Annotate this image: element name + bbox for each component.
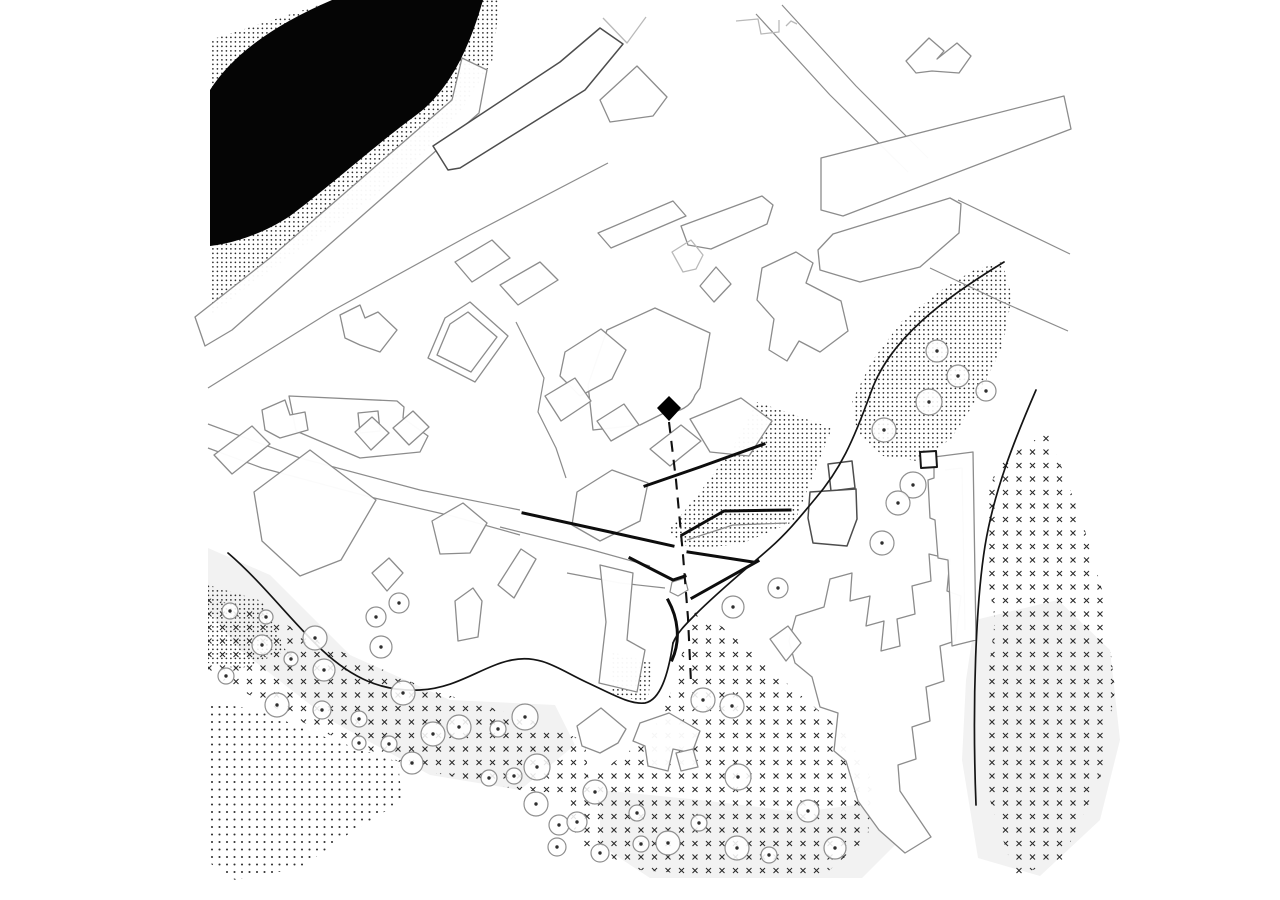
plan-content (195, 0, 1120, 880)
tree-center-dot (523, 715, 526, 718)
tree-center-dot (767, 853, 770, 856)
tree-center-dot (575, 820, 578, 823)
tree-center-dot (410, 761, 413, 764)
tree-center-dot (224, 674, 227, 677)
tree-center-dot (322, 668, 325, 671)
tree-center-dot (697, 821, 700, 824)
tree-center-dot (880, 541, 883, 544)
tree-center-dot (635, 811, 638, 814)
building (372, 558, 403, 591)
building (500, 262, 558, 305)
building (598, 201, 686, 248)
building (821, 96, 1071, 216)
site-plan-canvas (0, 0, 1280, 900)
tree-center-dot (736, 775, 739, 778)
tree-center-dot (593, 790, 596, 793)
tree-center-dot (598, 851, 601, 854)
tree-center-dot (313, 636, 316, 639)
building (681, 196, 773, 249)
site-plan-figure (0, 0, 1280, 900)
tree-center-dot (535, 765, 538, 768)
building (455, 588, 482, 641)
tree-center-dot (379, 645, 382, 648)
tree-center-dot (264, 615, 267, 618)
tree-center-dot (555, 845, 558, 848)
tree-center-dot (911, 483, 914, 486)
building (700, 267, 731, 302)
tree-center-dot (882, 428, 885, 431)
tree-center-dot (275, 703, 278, 706)
building (600, 66, 667, 122)
retaining-wall (630, 558, 685, 580)
building (498, 549, 536, 598)
tree-center-dot (387, 742, 390, 745)
tree-center-dot (534, 802, 537, 805)
building (455, 240, 510, 282)
tree-center-dot (228, 609, 231, 612)
tree-center-dot (401, 691, 404, 694)
tree-center-dot (956, 374, 959, 377)
tree-center-dot (512, 774, 515, 777)
street-edge (958, 200, 1070, 254)
tree-center-dot (374, 615, 377, 618)
tree-center-dot (357, 717, 360, 720)
tree-center-dot (457, 725, 460, 728)
tree-center-dot (806, 809, 809, 812)
tree-center-dot (731, 605, 734, 608)
tree-center-dot (639, 842, 642, 845)
building (254, 450, 376, 576)
tree-center-dot (320, 708, 323, 711)
tree-center-dot (735, 846, 738, 849)
building-dark (920, 451, 937, 468)
tree-center-dot (730, 704, 733, 707)
tree-center-dot (896, 501, 899, 504)
retaining-wall (688, 552, 753, 562)
building-faint (786, 21, 797, 26)
building (577, 708, 626, 753)
tree-center-dot (357, 741, 360, 744)
building (650, 425, 701, 466)
tree-center-dot (487, 776, 490, 779)
building (432, 503, 487, 554)
tree-center-dot (666, 841, 669, 844)
tree-center-dot (260, 643, 263, 646)
building (572, 470, 648, 541)
building (599, 565, 645, 692)
tree-center-dot (776, 586, 779, 589)
tree-center-dot (833, 846, 836, 849)
building (340, 305, 397, 352)
tree-center-dot (701, 698, 704, 701)
tree-center-dot (289, 657, 292, 660)
tree-center-dot (927, 400, 930, 403)
tree-center-dot (431, 732, 434, 735)
tree-center-dot (496, 727, 499, 730)
retaining-wall (668, 600, 677, 660)
building (214, 426, 270, 474)
street-edge (782, 5, 928, 158)
tree-center-dot (557, 823, 560, 826)
tree-center-dot (935, 349, 938, 352)
tree-center-dot (984, 389, 987, 392)
building (906, 38, 971, 73)
tree-center-dot (397, 601, 400, 604)
